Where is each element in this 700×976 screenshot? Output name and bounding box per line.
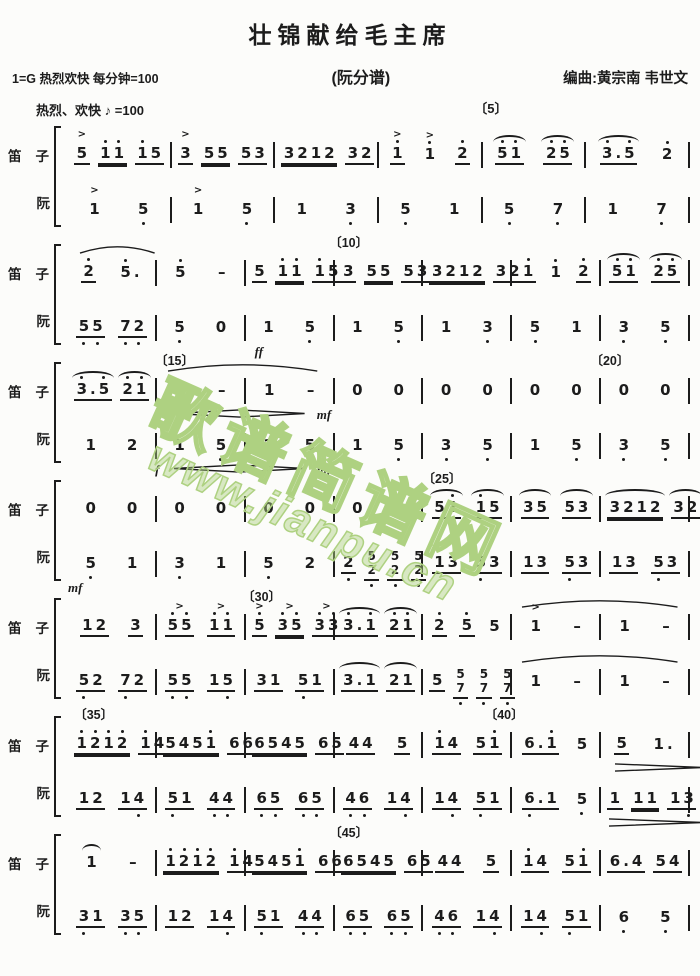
staff-line-dizi: 5>11153>55533212321>1>251253.52 xyxy=(68,134,690,176)
note-digit: 5 xyxy=(496,145,509,162)
note-digits: – xyxy=(304,382,317,400)
note-token: 2 xyxy=(81,263,96,283)
note-digit: 3 xyxy=(601,145,614,162)
note-digits: 6545 xyxy=(341,853,397,873)
note-digits: 1 xyxy=(528,618,543,636)
note-digit: 4 xyxy=(296,908,309,925)
rehearsal-marker: 〔10〕 xyxy=(329,237,368,250)
note-token: 3 xyxy=(616,319,631,337)
note-digits: – xyxy=(215,264,228,282)
note-token: 51 xyxy=(495,145,524,165)
barline xyxy=(688,142,690,168)
measure: 6.454 xyxy=(601,853,688,873)
note-digit: 1 xyxy=(401,617,414,634)
note-token: 31 xyxy=(76,908,105,928)
staff-bracket xyxy=(54,126,61,227)
note-digit: 2 xyxy=(132,318,145,335)
note-token: 1212 xyxy=(74,735,130,755)
chord-core: 52 xyxy=(387,550,402,580)
instrument-labels: 笛子阮 xyxy=(8,240,54,349)
measure: 5>35>33> xyxy=(246,617,333,637)
note-token: 57 xyxy=(500,665,515,698)
note-digit: 5 xyxy=(563,908,576,925)
note-digits: 3 xyxy=(438,437,453,455)
note-digit: 6 xyxy=(255,790,268,807)
note-digits: – xyxy=(571,673,584,691)
note-token: 7 xyxy=(654,201,669,219)
staff-lines: 〔45〕1–12121454516665456544514516.4543135… xyxy=(68,830,690,939)
note-digits: 35 xyxy=(275,617,304,637)
note-token: 2 xyxy=(124,437,139,455)
tie-arc xyxy=(430,489,463,496)
tie-arc xyxy=(339,607,381,614)
measure: 00 xyxy=(335,382,422,400)
note-token: 35 xyxy=(521,499,550,519)
note-token: 35> xyxy=(275,617,304,637)
instrument-labels: 笛子阮 xyxy=(8,476,54,585)
instrument-labels: 笛子阮 xyxy=(8,830,54,939)
staff-lines: 〔25〕000000005115355332123251315225252521… xyxy=(68,476,690,585)
staff-lines: 〔15〕〔20〕3.5211–1–00000000fmf121515153515… xyxy=(68,358,690,467)
note-digits: 13 xyxy=(667,790,696,810)
note-digit: 5 xyxy=(91,318,104,335)
note-digit: 2 xyxy=(685,499,698,516)
note-token: 3 xyxy=(172,555,187,573)
note-digits: 15 xyxy=(312,263,341,283)
note-digit: 6 xyxy=(344,908,357,925)
note-digit: 2 xyxy=(444,263,457,280)
note-digit: 1 xyxy=(139,735,152,752)
instrument-label-dizi: 笛子 xyxy=(8,853,54,873)
accent-mark: > xyxy=(181,130,189,140)
note-digit: 1 xyxy=(474,499,487,516)
note-token: 13 xyxy=(432,554,461,574)
note-digit: 5 xyxy=(366,550,377,563)
chord-stack: 52 xyxy=(412,550,425,577)
accent-mark: > xyxy=(90,186,98,196)
tie-arc xyxy=(560,489,593,496)
note-token: 5 xyxy=(394,735,409,755)
note-digit: 5 xyxy=(191,735,204,752)
note-token: 57 xyxy=(476,665,491,698)
note-token: 33> xyxy=(312,617,341,637)
note-digit: 1 xyxy=(290,263,303,280)
swell-mark xyxy=(174,464,305,473)
note-digit: 5 xyxy=(253,263,266,280)
note-digit: 1 xyxy=(635,499,648,516)
note-token: 55 xyxy=(364,263,393,283)
measure: 4614 xyxy=(423,908,510,928)
system-7: 笛子阮〔45〕1–12121454516665456544514516.4543… xyxy=(8,830,690,939)
note-token: 32 xyxy=(493,263,522,283)
note-digits: 65 xyxy=(384,908,413,928)
note-digits: 5 xyxy=(388,550,401,564)
note-digit: 5 xyxy=(659,909,672,926)
measure: 1214 xyxy=(157,908,244,928)
note-digit: 0 xyxy=(351,382,364,399)
note-token: 3212 xyxy=(281,145,337,165)
note-token: – xyxy=(660,673,673,691)
note-digits: 1 xyxy=(172,437,187,455)
note-digit: 3 xyxy=(253,145,266,162)
note-digit: 5 xyxy=(280,853,293,870)
note-digit: – xyxy=(661,618,672,635)
note-digit: 1 xyxy=(112,145,125,162)
note-digits: 14 xyxy=(432,735,461,755)
note-token: 1> xyxy=(390,145,405,165)
measure: 00 xyxy=(601,382,688,400)
note-token: 1> xyxy=(190,201,205,219)
note-token: 55 xyxy=(201,145,230,165)
note-digit: 3 xyxy=(282,145,295,162)
note-digits: 14 xyxy=(118,790,147,810)
note-digit: 1 xyxy=(313,263,326,280)
note-digit: 1 xyxy=(433,790,446,807)
note-token: 52 xyxy=(76,672,105,692)
note-digits: 5 xyxy=(398,201,413,219)
note-digits: 5 xyxy=(239,201,254,219)
note-digits: 35 xyxy=(118,908,147,928)
note-digits: 72 xyxy=(118,318,147,338)
note-digit: 5 xyxy=(570,437,583,454)
note-digits: 53 xyxy=(562,554,591,574)
note-digit: 5 xyxy=(216,145,229,162)
measure: 65 xyxy=(601,909,688,927)
note-digit: – xyxy=(216,382,227,399)
note-digit: 1 xyxy=(77,790,90,807)
note-digits: 32 xyxy=(493,263,522,283)
note-digit: 3 xyxy=(617,437,630,454)
instrument-label-dizi: 笛子 xyxy=(8,617,54,637)
note-digit: 1 xyxy=(576,853,589,870)
instrument-label-dizi: 笛子 xyxy=(8,381,54,401)
note-digit: 1 xyxy=(457,263,470,280)
note-digits: 0 xyxy=(616,382,631,400)
note-token: 5 xyxy=(398,201,413,219)
note-digit: 4 xyxy=(221,790,234,807)
note-digit: 3 xyxy=(439,437,452,454)
note-digits: 65 xyxy=(295,790,324,810)
note-token: 1 xyxy=(172,437,187,455)
tie-arc xyxy=(541,135,574,142)
note-digit: 1 xyxy=(293,853,306,870)
measure: 51 xyxy=(68,555,155,573)
note-digits: 1 xyxy=(390,145,405,165)
note-digits: – xyxy=(127,854,140,872)
note-digit: 1 xyxy=(119,790,132,807)
note-digit: 5 xyxy=(652,554,665,571)
tie-arc xyxy=(649,253,682,260)
measure: 5– xyxy=(157,264,244,282)
note-digit: . xyxy=(622,853,631,870)
note-digit: 3 xyxy=(535,554,548,571)
note-token: 5 xyxy=(527,319,542,337)
note-digits: 65 xyxy=(254,790,283,810)
dynamic-mf: mf xyxy=(68,581,82,594)
measure: 31 xyxy=(157,555,244,573)
note-token: 2 xyxy=(576,263,591,283)
tie-arc xyxy=(339,662,381,669)
staff-line-ruan: 5272551531513.12155757571–1– xyxy=(68,661,690,703)
note-digit: . xyxy=(355,617,364,634)
measure: 00 xyxy=(157,500,244,518)
tie-arc xyxy=(471,489,504,496)
note-digit: 2 xyxy=(296,145,309,162)
swell-mark xyxy=(174,409,305,418)
note-token: 21 xyxy=(386,617,415,637)
measure: 52 xyxy=(246,555,333,573)
note-digits: 65 xyxy=(404,853,433,873)
note-token: 3.5 xyxy=(74,381,112,401)
measure: 654565 xyxy=(246,735,333,755)
note-digits: 1 xyxy=(438,319,453,337)
note-digit: 5 xyxy=(659,319,672,336)
note-digits: 11 xyxy=(275,263,304,283)
measure: 1451 xyxy=(423,790,510,810)
note-digit: 5 xyxy=(164,735,177,752)
note-digits: 0 xyxy=(527,382,542,400)
note-digit: 1 xyxy=(180,790,193,807)
note-token: 52 xyxy=(411,547,426,580)
note-digit: 5 xyxy=(392,437,405,454)
note-token: 1 xyxy=(569,319,584,337)
note-digit: 5 xyxy=(365,263,378,280)
measure: 6565 xyxy=(246,790,333,810)
measure: 321232 xyxy=(423,263,510,283)
note-digit: 6 xyxy=(253,735,266,752)
note-digits: 5 xyxy=(136,201,151,219)
measure: 6.15 xyxy=(512,735,599,755)
note-digit: 4 xyxy=(535,853,548,870)
note-token: 54 xyxy=(653,853,682,873)
barline xyxy=(688,378,690,404)
note-token: 51 xyxy=(562,853,591,873)
accent-mark: > xyxy=(322,602,330,612)
note-digits: 35 xyxy=(521,499,550,519)
note-digit: 5 xyxy=(266,735,279,752)
instrument-label-dizi: 笛子 xyxy=(8,735,54,755)
measure: 1– xyxy=(157,382,244,400)
note-token: 1 xyxy=(83,437,98,455)
note-digit: 0 xyxy=(125,500,138,517)
note-digit: 5 xyxy=(433,499,446,516)
note-digit: 5 xyxy=(180,672,193,689)
dynamic-mf: mf xyxy=(317,463,331,476)
note-digit: 5 xyxy=(174,264,187,281)
note-digits: 14 xyxy=(521,853,550,873)
note-token: 51 xyxy=(473,790,502,810)
note-digit: 5 xyxy=(262,555,275,572)
note-digits: 1 xyxy=(261,382,276,400)
note-digit: 6 xyxy=(617,909,630,926)
note-token: 0 xyxy=(213,500,228,518)
note-token: 5 xyxy=(487,618,502,636)
tie-arc xyxy=(384,607,417,614)
note-digit: 1 xyxy=(208,672,221,689)
note-digits: 1. xyxy=(651,736,675,754)
note-digits: 1 xyxy=(605,201,620,219)
note-digits: 3 xyxy=(341,263,356,283)
note-digits: 51 xyxy=(432,499,461,519)
note-token: 5> xyxy=(74,145,89,165)
note-digit: 2 xyxy=(323,145,336,162)
note-digit: 4 xyxy=(266,853,279,870)
note-token: – xyxy=(571,618,584,636)
note-digit: 5 xyxy=(575,736,588,753)
measure: 1>– xyxy=(512,618,599,636)
note-digit: – xyxy=(572,673,583,690)
note-token: 5> xyxy=(252,617,267,637)
chord-core: 57 xyxy=(476,668,491,698)
measure: 445 xyxy=(423,853,510,873)
note-token: 5 xyxy=(173,264,188,282)
measure: 35 xyxy=(423,437,510,455)
note-digits: 14 xyxy=(473,908,502,928)
part-label: (阮分谱) xyxy=(332,64,391,88)
note-digit: . xyxy=(132,264,141,281)
measure: 15 xyxy=(157,437,244,455)
note-token: 5 xyxy=(391,319,406,337)
score-title: 壮锦献给毛主席 xyxy=(0,0,700,64)
measure: 1– xyxy=(512,673,599,691)
note-digits: 3.5 xyxy=(600,145,638,165)
note-token: 1 xyxy=(447,201,462,219)
note-token: 5451 xyxy=(163,735,219,755)
note-token: 13 xyxy=(609,554,638,574)
note-digit: 1 xyxy=(545,790,558,807)
note-token: 5 xyxy=(574,736,589,754)
note-digit: 5 xyxy=(303,437,316,454)
note-digits: 46 xyxy=(432,908,461,928)
note-digit: 1 xyxy=(85,854,98,871)
note-digit: 5 xyxy=(488,618,501,635)
note-digit: 1 xyxy=(608,790,621,807)
note-token: 53 xyxy=(238,145,267,165)
note-token: 3 xyxy=(341,263,356,283)
note-token: 0 xyxy=(391,500,406,518)
note-digit: 4 xyxy=(132,790,145,807)
rehearsal-marker: 〔5〕 xyxy=(474,102,507,115)
note-digits: 7 xyxy=(550,201,565,219)
accent-mark: > xyxy=(78,130,86,140)
tie-arc xyxy=(607,253,640,260)
staff-line-dizi: 12121454516665456544514516.1551. xyxy=(68,724,690,766)
note-digits: 14 xyxy=(207,908,236,928)
note-digit: 0 xyxy=(214,319,227,336)
note-digit: . xyxy=(614,145,623,162)
note-digit: 5 xyxy=(330,735,343,752)
note-digits: 3 xyxy=(128,617,143,637)
note-token: 5 xyxy=(391,437,406,455)
composer-credit: 编曲:黄宗南 韦世文 xyxy=(563,67,688,88)
note-digit: 2 xyxy=(204,853,217,870)
barline xyxy=(688,669,690,695)
staff-bracket xyxy=(54,480,61,581)
note-digits: 5 xyxy=(487,618,502,636)
note-digit: 1 xyxy=(262,382,275,399)
note-digits: 5 xyxy=(658,437,673,455)
note-digits: 5 xyxy=(614,735,629,755)
note-digit: 5 xyxy=(166,672,179,689)
note-digit: 4 xyxy=(361,735,374,752)
note-digits: 0 xyxy=(391,382,406,400)
note-digits: – xyxy=(571,618,584,636)
staff-lines: 〔35〕〔40〕12121454516665456544514516.1551.… xyxy=(68,712,690,821)
barline xyxy=(688,905,690,931)
note-token: 0 xyxy=(213,319,228,337)
note-token: 6.1 xyxy=(522,790,560,810)
note-digit: 3 xyxy=(313,617,326,634)
measure: 15 xyxy=(512,437,599,455)
note-digits: 3.1 xyxy=(341,672,379,692)
tie-arc xyxy=(605,489,665,496)
note-token: 2 xyxy=(302,555,317,573)
note-token: 46 xyxy=(432,908,461,928)
note-token: 65 xyxy=(315,735,344,755)
note-digit: 4 xyxy=(310,908,323,925)
note-token: 3.1 xyxy=(341,617,379,637)
note-digit: 5 xyxy=(214,437,227,454)
note-token: 55> xyxy=(165,617,194,637)
note-digits: 2 xyxy=(124,437,139,455)
tie-arc xyxy=(669,489,700,496)
accent-mark: > xyxy=(194,186,202,196)
note-digit: 3 xyxy=(119,908,132,925)
note-digits: 7 xyxy=(501,682,514,696)
note-digit: 1 xyxy=(570,319,583,336)
note-digit: 3 xyxy=(346,145,359,162)
note-digits: 5 xyxy=(365,550,378,564)
note-digits: 5 xyxy=(569,437,584,455)
measure: 17 xyxy=(586,201,688,219)
note-digit: 2 xyxy=(471,263,484,280)
note-digits: 5 xyxy=(302,437,317,455)
sheet-page: { "title": "壮锦献给毛主席", "header": { "key_t… xyxy=(0,0,700,976)
note-token: 0 xyxy=(569,382,584,400)
slur-mark xyxy=(168,363,317,372)
note-token: 5. xyxy=(118,264,142,282)
note-digits: 53 xyxy=(562,499,591,519)
note-digit: 0 xyxy=(528,382,541,399)
note-digit: 3 xyxy=(672,499,685,516)
note-token: 1 xyxy=(520,263,535,283)
chord-core: 57 xyxy=(453,668,468,698)
note-digits: 2 xyxy=(341,554,356,574)
note-digits: 1212 xyxy=(163,853,219,873)
instrument-labels: 笛子阮 xyxy=(8,594,54,703)
measure: 11113 xyxy=(601,790,688,810)
note-digit: 2 xyxy=(387,617,400,634)
note-digits: 1 xyxy=(87,201,102,219)
note-token: 3> xyxy=(178,145,193,165)
note-digits: 3212 xyxy=(429,263,485,283)
note-digit: 3 xyxy=(446,554,459,571)
note-digits: 55 xyxy=(76,318,105,338)
note-token: 5 xyxy=(459,617,474,637)
measure: 545166 xyxy=(157,735,244,755)
note-token: 15 xyxy=(207,672,236,692)
slur-mark xyxy=(80,245,155,254)
chord-core: 57 xyxy=(500,668,515,698)
note-token: 1 xyxy=(438,319,453,337)
staff-line-dizi: 25.5–51115355533212321125125 xyxy=(68,252,690,294)
note-token: 55 xyxy=(76,318,105,338)
note-digits: 5 xyxy=(173,264,188,282)
note-digit: 7 xyxy=(478,682,489,695)
measure: 1>5 xyxy=(172,201,274,219)
barline xyxy=(688,551,690,577)
note-digit: 3 xyxy=(608,499,621,516)
